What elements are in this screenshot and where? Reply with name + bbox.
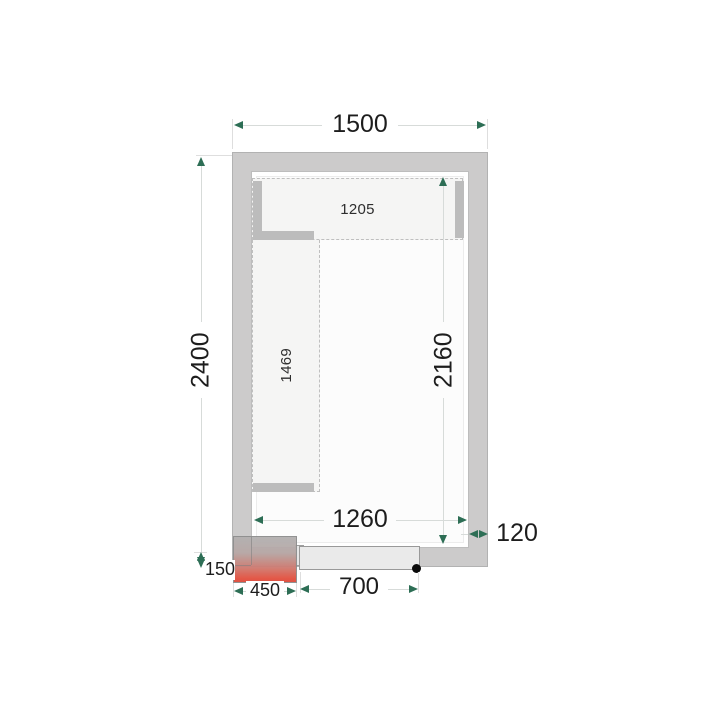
dim-2160-arrow-up-icon xyxy=(439,177,447,186)
dim-150-arrow-down-icon xyxy=(197,559,205,568)
shelf-left: 1469 xyxy=(252,240,320,492)
dim-450-arrow-right-icon xyxy=(287,587,296,595)
condensing-unit xyxy=(233,536,297,583)
dim-inner-width-label: 1260 xyxy=(324,506,396,534)
shelf-top-length-label: 1205 xyxy=(340,201,375,218)
dim-1500-ext-right xyxy=(487,119,488,149)
dim-120-stub xyxy=(461,534,468,535)
wall-corner-line-horizontal xyxy=(234,565,251,566)
wall-corner-line-vertical xyxy=(251,537,252,565)
dim-2160-arrow-down-icon xyxy=(439,535,447,544)
dim-120-arrow-right-icon xyxy=(479,530,488,538)
dim-outer-height-label: 2400 xyxy=(186,322,216,398)
dim-2400-ext-top xyxy=(196,155,232,156)
shelf-left-length-label: 1469 xyxy=(278,348,295,383)
dim-700-ext-right xyxy=(418,572,419,593)
dim-door-width-label: 700 xyxy=(330,574,388,600)
dim-120-arrow-left-icon xyxy=(469,530,478,538)
dim-1260-arrow-right-icon xyxy=(458,516,467,524)
door-hinge-dot xyxy=(412,564,421,573)
dim-1500-ext-left xyxy=(232,119,233,149)
shelf-board-top-right xyxy=(455,181,464,238)
dim-2400-arrow-up-icon xyxy=(197,157,205,166)
shelf-board-left-lower xyxy=(253,483,314,492)
dim-700-arrow-right-icon xyxy=(409,585,418,593)
dim-unit-protrusion-label: 150 xyxy=(205,560,235,580)
shelf-board-top-left xyxy=(253,181,262,232)
dim-unit-width-label: 450 xyxy=(246,581,284,601)
dim-inner-height-label: 2160 xyxy=(430,322,458,398)
dim-outer-width-label: 1500 xyxy=(322,111,398,139)
shelf-board-left-upper xyxy=(253,231,314,240)
dim-700-arrow-left-icon xyxy=(300,585,309,593)
dim-1500-arrow-left-icon xyxy=(234,121,243,129)
dim-450-arrow-left-icon xyxy=(234,587,243,595)
dim-1260-arrow-left-icon xyxy=(254,516,263,524)
dim-450-ext-right xyxy=(296,583,297,597)
dim-wall-thickness-label: 120 xyxy=(492,520,542,548)
dim-1500-arrow-right-icon xyxy=(477,121,486,129)
cold-room-plan-diagram: 1205 1469 1500 2400 2160 1260 120 150 xyxy=(0,0,720,720)
door-leaf xyxy=(299,546,420,570)
